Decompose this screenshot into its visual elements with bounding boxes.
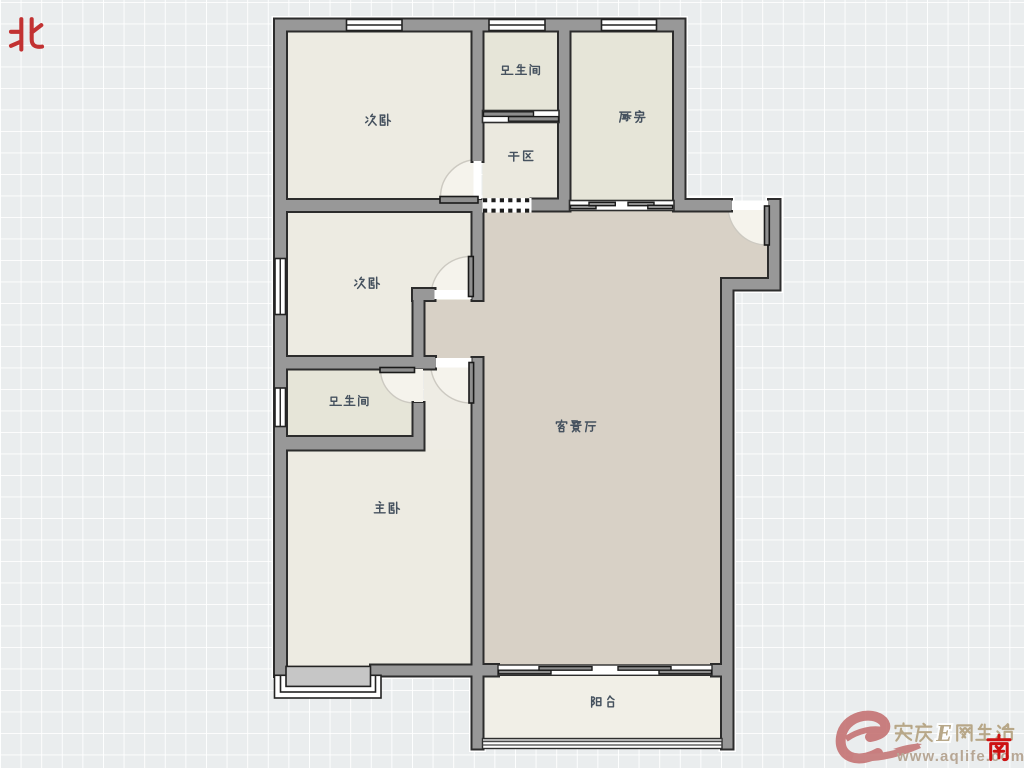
svg-text:E: E (935, 721, 952, 747)
